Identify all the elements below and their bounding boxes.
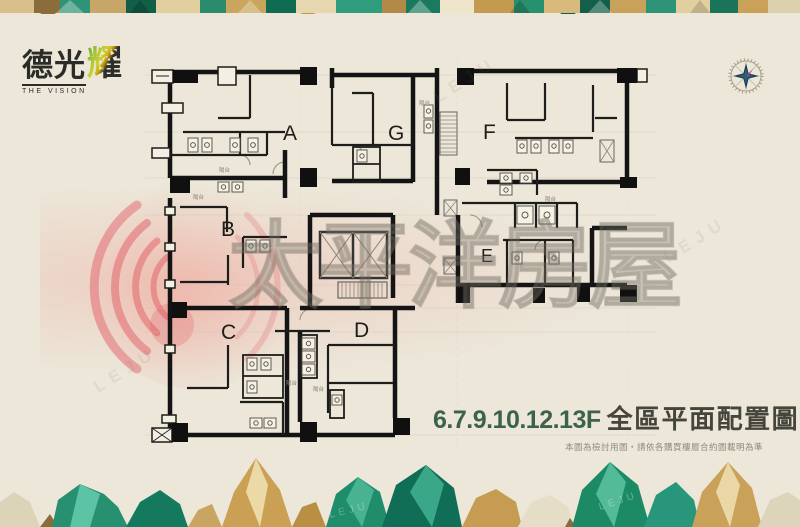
compass-icon (726, 56, 766, 96)
logo-text-accent: 耀 (87, 46, 122, 81)
balcony-label: 陽台 (193, 193, 205, 201)
unit-label-f: F (483, 121, 496, 144)
unit-label-b: B (221, 218, 235, 241)
gem-border-top (0, 0, 800, 14)
logo-divider (22, 84, 86, 86)
logo-text-main: 德光 (22, 50, 86, 81)
balcony-label: 陽台 (545, 195, 557, 203)
poster: A G F B E C D 陽台 陽台 陽台 陽台 陽台 陽台 太平洋房屋 LE… (0, 0, 800, 527)
unit-label-g: G (388, 122, 404, 145)
floor-plan: A G F B E C D 陽台 陽台 陽台 陽台 陽台 陽台 (140, 55, 660, 455)
balcony-label: 陽台 (419, 99, 431, 107)
balcony-label: 陽台 (219, 166, 231, 174)
caption-floors: 6.7.9.10.12.13F (433, 406, 601, 435)
unit-label-c: C (221, 321, 236, 344)
unit-label-a: A (283, 122, 297, 145)
logo-tagline: THE VISION (22, 88, 122, 95)
caption: 6.7.9.10.12.13F 全區平面配置圖 本圖為檢討用圖‧請依各購買樓層合… (433, 399, 763, 453)
balcony-label: 陽台 (286, 379, 298, 387)
balcony-label: 陽台 (313, 385, 325, 393)
unit-label-e: E (481, 246, 493, 266)
watermark-leju: LEJU (660, 213, 731, 268)
caption-title: 全區平面配置圖 (607, 399, 800, 436)
gem-border-bottom: LEJU LEJU (0, 452, 800, 527)
unit-label-d: D (354, 319, 369, 342)
brand-logo: 德光 耀 THE VISION (22, 46, 122, 95)
